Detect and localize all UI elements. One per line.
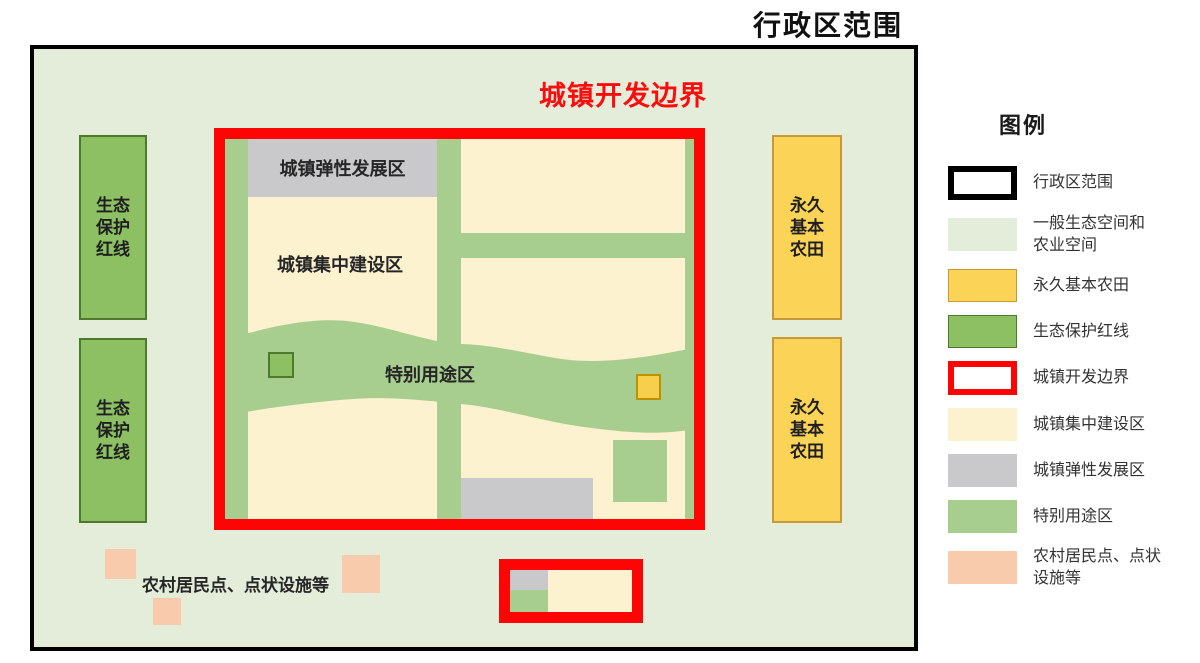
legend-label-farmland: 永久基本农田 [1033,275,1129,297]
legend-label-special: 特别用途区 [1033,506,1113,528]
legend-row-eco-line: 生态保护红线 [948,315,1200,348]
eco-protection-box-top: 生态 保护 红线 [79,135,147,320]
legend-title: 图例 [948,108,1098,140]
legend-swatch-rural [948,551,1017,584]
special-zone-label: 特别用途区 [340,361,520,387]
legend-label-rural: 农村居民点、点状 设施等 [1033,546,1161,589]
legend-swatch-farmland [948,269,1017,302]
mini-flexible-rect [510,570,548,590]
legend-label-flexible: 城镇弹性发展区 [1033,460,1145,482]
legend-row-boundary: 城镇开发边界 [948,361,1200,395]
legend-row-special: 特别用途区 [948,500,1200,533]
legend-row-flexible: 城镇弹性发展区 [948,454,1200,487]
legend-row-admin: 行政区范围 [948,166,1200,200]
concentrated-zone-label: 城镇集中建设区 [250,251,430,277]
legend-row-farmland: 永久基本农田 [948,269,1200,302]
farmland-box-top: 永久 基本 农田 [772,135,842,320]
legend-swatch-boundary [948,361,1017,395]
legend-swatch-concentrated [948,408,1017,441]
eco-protection-box-bottom: 生态 保护 红线 [79,338,147,523]
legend-swatch-eco-line [948,315,1017,348]
development-boundary-title: 城镇开发边界 [493,74,707,106]
planning-diagram: 行政区范围 城镇开发边界 生态 保护 红线 生态 保护 红线 永久 基本 农田 … [0,0,1200,663]
flexible-zone-label: 城镇弹性发展区 [280,155,406,181]
flexible-zone-rect: 城镇弹性发展区 [248,139,437,197]
legend-label-eco-line: 生态保护红线 [1033,321,1129,343]
mini-special-rect [510,590,548,612]
legend: 图例 行政区范围 一般生态空间和 农业空间 永久基本农田 生态保护红线 城镇开发… [948,108,1200,602]
farmland-box-bottom: 永久 基本 农田 [772,337,842,523]
small-farmland-square [636,374,661,400]
mini-boundary-rect [499,559,643,623]
legend-row-general-space: 一般生态空间和 农业空间 [948,213,1200,256]
rural-square-2 [153,598,181,625]
small-eco-square [268,352,294,378]
legend-swatch-flexible [948,454,1017,487]
development-boundary-rect: 城镇弹性发展区 城镇集中建设区 特别用途区 [214,128,705,530]
admin-area-title: 行政区范围 [740,4,916,38]
special-zone-bottom-rect [613,440,667,502]
legend-label-boundary: 城镇开发边界 [1033,367,1129,389]
legend-swatch-special [948,500,1017,533]
legend-swatch-admin [948,166,1017,200]
legend-label-concentrated: 城镇集中建设区 [1033,414,1145,436]
rural-square-3 [342,555,380,593]
rural-label: 农村居民点、点状设施等 [142,571,329,596]
legend-row-concentrated: 城镇集中建设区 [948,408,1200,441]
rural-square-1 [105,549,136,579]
legend-swatch-general-space [948,218,1017,251]
flexible-zone-bottom-rect [461,478,593,519]
legend-label-general-space: 一般生态空间和 农业空间 [1033,213,1145,256]
legend-row-rural: 农村居民点、点状 设施等 [948,546,1200,589]
legend-label-admin: 行政区范围 [1033,172,1113,194]
